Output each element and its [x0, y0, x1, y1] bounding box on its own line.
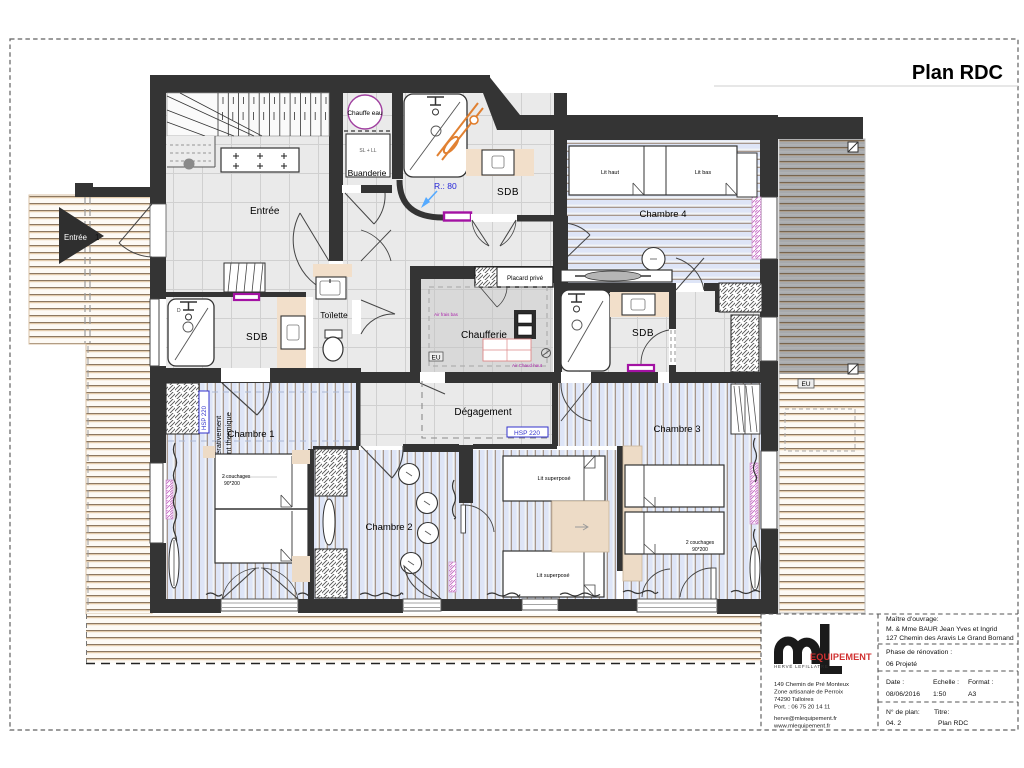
svg-text:Phase de rénovation :: Phase de rénovation :: [886, 649, 952, 656]
svg-text:149 Chemin de Pré Monteux: 149 Chemin de Pré Monteux: [774, 682, 849, 688]
svg-text:Chambre 4: Chambre 4: [640, 209, 687, 220]
svg-text:Lit bas: Lit bas: [695, 170, 711, 176]
svg-text:EQUIPEMENT: EQUIPEMENT: [810, 652, 872, 662]
svg-text:SDB: SDB: [246, 332, 268, 343]
svg-text:Port. : 06 75 20 14 11: Port. : 06 75 20 14 11: [774, 705, 830, 711]
svg-text:Lit superposé: Lit superposé: [537, 476, 570, 482]
svg-text:Zone artisanale de Perroix: Zone artisanale de Perroix: [774, 690, 843, 696]
svg-text:herve@mlequipement.fr: herve@mlequipement.fr: [774, 716, 837, 722]
svg-text:Plan RDC: Plan RDC: [912, 62, 1003, 84]
svg-text:Lit superposé: Lit superposé: [536, 573, 569, 579]
svg-text:Format :: Format :: [968, 679, 993, 686]
svg-text:Chambre 1: Chambre 1: [228, 429, 275, 440]
svg-text:Toïlette: Toïlette: [320, 310, 348, 320]
svg-text:Dégagement: Dégagement: [454, 407, 511, 418]
svg-text:A3: A3: [968, 691, 977, 698]
svg-text:HSP 220: HSP 220: [514, 430, 540, 437]
svg-text:1:50: 1:50: [933, 691, 946, 698]
svg-text:SDB: SDB: [497, 187, 519, 198]
svg-text:08/06/2016: 08/06/2016: [886, 691, 920, 698]
svg-text:Date :: Date :: [886, 679, 904, 686]
svg-text:R.: 80: R.: 80: [434, 181, 457, 191]
svg-text:06 Projeté: 06 Projeté: [886, 661, 917, 668]
svg-text:Echelle :: Echelle :: [933, 679, 959, 686]
svg-text:Maître d'ouvrage:: Maître d'ouvrage:: [886, 616, 939, 623]
svg-text:HSP 220: HSP 220: [202, 405, 208, 430]
svg-text:90*200: 90*200: [692, 547, 708, 553]
svg-text:Chauffe eau: Chauffe eau: [347, 110, 383, 117]
svg-text:SDB: SDB: [632, 328, 654, 339]
svg-text:D: D: [177, 308, 181, 314]
svg-text:N° de plan:: N° de plan:: [886, 708, 920, 716]
svg-text:HERVÉ LEFILLATRE: HERVÉ LEFILLATRE: [774, 664, 829, 669]
svg-text:SL + LL: SL + LL: [359, 148, 376, 154]
svg-text:Entrée: Entrée: [250, 206, 280, 217]
svg-text:2 couchages: 2 couchages: [686, 540, 715, 546]
svg-text:EU: EU: [431, 355, 440, 362]
svg-text:M. & Mme BAUR Jean Yves et In: M. & Mme BAUR Jean Yves et Ingrid: [886, 626, 998, 633]
svg-text:Lit haut: Lit haut: [601, 170, 620, 176]
svg-text:Chambre 3: Chambre 3: [654, 424, 701, 435]
svg-text:Buanderie: Buanderie: [348, 168, 387, 178]
svg-text:90*200: 90*200: [224, 481, 240, 487]
svg-text:127 Chemin des Aravis Le Grand: 127 Chemin des Aravis Le Grand Bornand: [886, 635, 1014, 642]
svg-text:Air Chaud haut: Air Chaud haut: [512, 363, 543, 368]
svg-text:Placard privé: Placard privé: [507, 275, 544, 282]
svg-text:Entrée: Entrée: [64, 233, 87, 242]
svg-text:Titre:: Titre:: [934, 709, 949, 716]
svg-text:74290 Talloires: 74290 Talloires: [774, 697, 814, 703]
svg-text:04. 2: 04. 2: [886, 720, 901, 727]
svg-text:Chambre 2: Chambre 2: [366, 522, 413, 533]
svg-text:1: 1: [95, 233, 99, 242]
svg-text:www.mlequipement.fr: www.mlequipement.fr: [773, 724, 830, 730]
svg-text:Air frais bas: Air frais bas: [434, 312, 459, 317]
svg-text:Plan RDC: Plan RDC: [938, 720, 968, 727]
svg-text:EU: EU: [801, 381, 810, 388]
